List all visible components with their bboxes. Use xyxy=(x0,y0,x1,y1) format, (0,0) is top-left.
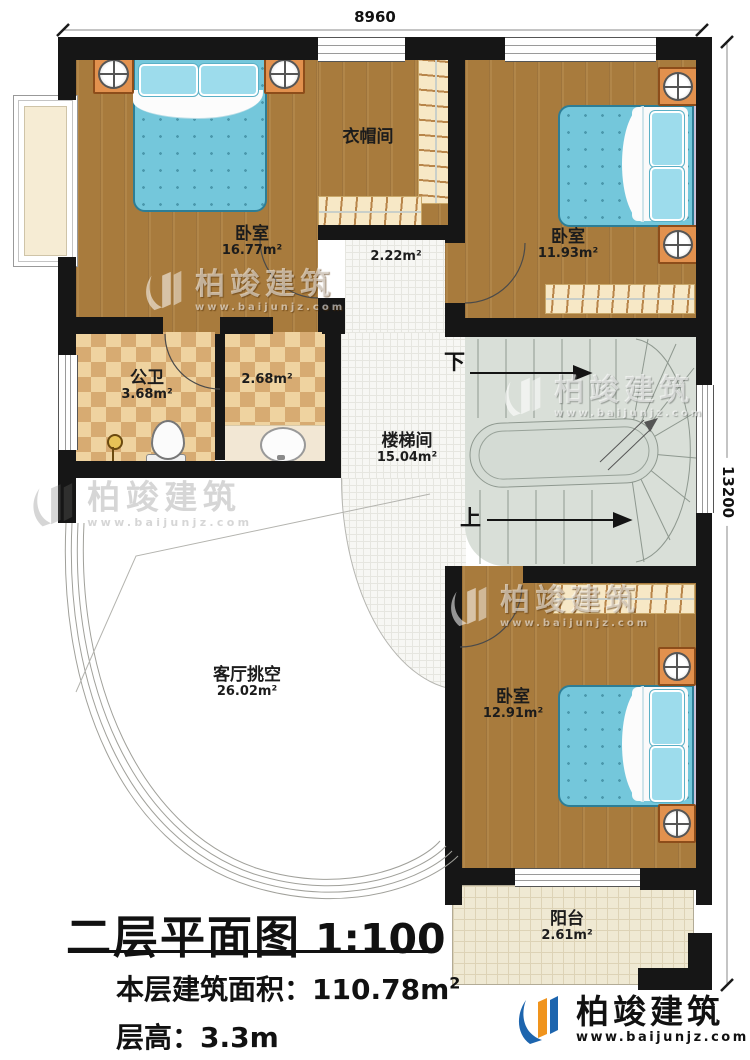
lamp-icon xyxy=(663,809,691,838)
room-label-living-void: 客厅挑空 26.02m² xyxy=(213,667,281,698)
pillow xyxy=(650,111,684,167)
wall-segment xyxy=(215,334,225,460)
nightstand xyxy=(658,647,696,686)
floor-threshold xyxy=(445,243,465,303)
plan-title: 二层平面图1:100 xyxy=(66,901,446,966)
sink-tap-icon xyxy=(277,455,285,460)
wall-segment xyxy=(58,257,76,355)
wall-segment xyxy=(445,225,465,243)
wall-segment xyxy=(318,225,460,240)
pillow xyxy=(199,64,258,96)
pillow xyxy=(650,690,684,746)
floor-drain-icon xyxy=(107,434,123,450)
window xyxy=(505,37,656,62)
pillow xyxy=(650,167,684,221)
floorplan-canvas: 8960 13200 卧室 16.77m² 衣帽间 2.22m² 卧室 11.9… xyxy=(0,0,750,1060)
wardrobe xyxy=(545,284,695,314)
wall-segment xyxy=(638,968,712,990)
window xyxy=(58,355,78,450)
wall-segment xyxy=(523,566,700,583)
wall-segment xyxy=(220,317,273,334)
room-label-bedroom-topright: 卧室 11.93m² xyxy=(538,229,598,260)
wall-segment xyxy=(445,583,462,905)
floor-staircase xyxy=(465,337,696,566)
room-label-balcony: 阳台 2.61m² xyxy=(541,911,592,942)
wall-segment xyxy=(448,37,465,225)
company-logo: 柏竣建筑 www.baijunjz.com xyxy=(518,992,749,1046)
title-underline xyxy=(68,950,432,953)
dimension-width-label: 8960 xyxy=(346,8,404,26)
nightstand xyxy=(93,54,134,94)
stair-down-label: 下 xyxy=(444,352,465,373)
lamp-icon xyxy=(663,652,691,681)
room-label-bedroom-topleft: 卧室 16.77m² xyxy=(222,226,282,257)
window xyxy=(318,37,405,62)
wall-segment xyxy=(445,318,712,337)
room-label-washroom: 2.68m² xyxy=(241,373,292,387)
room-label-hallway: 2.22m² xyxy=(370,250,421,264)
bay-window-sill xyxy=(24,106,67,256)
nightstand xyxy=(658,225,698,264)
floor-height-line: 层高：3.3m xyxy=(116,1016,279,1056)
wardrobe xyxy=(318,196,422,228)
balcony-door-window xyxy=(515,868,640,887)
toilet-icon xyxy=(151,420,185,460)
wall-segment xyxy=(445,868,515,885)
wall-segment xyxy=(58,37,76,100)
nightstand xyxy=(658,804,696,843)
nightstand xyxy=(264,54,305,94)
pillow xyxy=(650,746,684,802)
floor-area-line: 本层建筑面积：110.78m2 xyxy=(116,968,460,1008)
room-label-closet: 衣帽间 xyxy=(343,129,394,147)
room-label-stairwell: 楼梯间 15.04m² xyxy=(377,433,437,464)
lamp-icon xyxy=(98,59,129,89)
wall-segment xyxy=(640,868,700,890)
room-label-bedroom-bottom: 卧室 12.91m² xyxy=(483,689,543,720)
dimension-height-label: 13200 xyxy=(719,458,737,526)
stair-up-label: 上 xyxy=(460,508,481,529)
window xyxy=(696,385,714,513)
lamp-icon xyxy=(663,72,693,101)
wall-segment xyxy=(318,298,345,332)
lamp-icon xyxy=(269,59,300,89)
wall-segment xyxy=(325,332,341,478)
pillow xyxy=(139,64,198,96)
wall-segment xyxy=(58,317,163,334)
wardrobe xyxy=(553,584,695,614)
nightstand xyxy=(658,67,698,106)
lamp-icon xyxy=(663,230,693,259)
wall-segment xyxy=(58,461,341,478)
room-label-bathroom: 公卫 3.68m² xyxy=(121,370,172,401)
company-logo-icon xyxy=(518,992,568,1046)
wall-segment xyxy=(445,566,462,583)
